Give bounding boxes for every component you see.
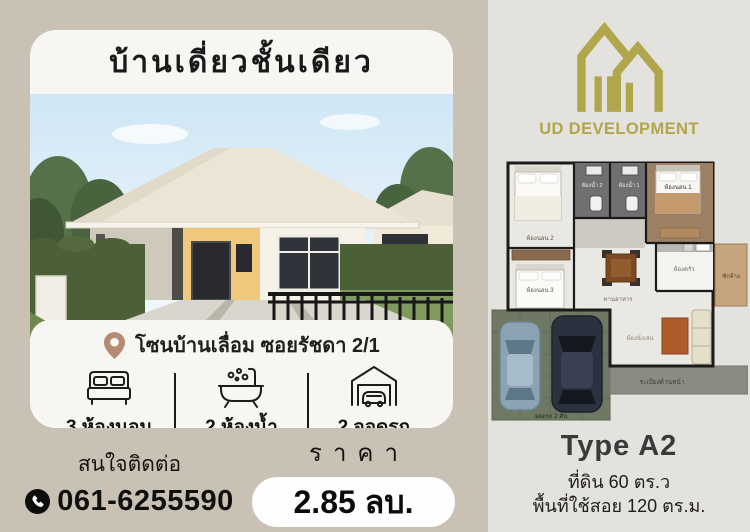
living-label: ห้องนั่งเล่น [626, 334, 653, 342]
location-text: โซนบ้านเลื่อม ซอยรัชดา 2/1 [135, 329, 380, 361]
floorplan: จอดรถ 2 คัน ระเบียงด้านหน้า ซักล้าง ห้อง… [490, 152, 748, 424]
sideboard [512, 250, 570, 260]
sofa [692, 310, 711, 364]
bed-icon [83, 367, 135, 409]
brand-name: UD DEVELOPMENT [488, 120, 750, 139]
feature-parking-label: 2 จอดรถ [338, 412, 410, 428]
phone-digits: 061-6255590 [57, 485, 233, 518]
porch-label: ระเบียงด้านหน้า [639, 378, 684, 386]
feature-bedrooms: 3 ห้องนอน [44, 363, 174, 428]
hall-area [575, 218, 645, 248]
bedroom3-area: ห้องนอน 3 [516, 264, 564, 308]
flyer: UD DEVELOPMENT จอดรถ 2 คัน [0, 0, 750, 532]
laundry-label: ซักล้าง [722, 273, 740, 280]
usable-area: พื้นที่ใช้สอย 120 ตร.ม. [488, 491, 750, 520]
contact-label: สนใจติดต่อ [22, 448, 237, 481]
price-label: ราคา [252, 433, 455, 472]
feature-bathrooms: 2 ห้องน้ำ [176, 363, 306, 428]
contact-block: สนใจติดต่อ 061-6255590 [22, 448, 237, 518]
bath1-label: ห้องน้ำ 1 [618, 181, 639, 189]
coffee-table [662, 318, 688, 354]
features-row: 3 ห้องนอน 2 ห้องน้ำ [30, 361, 453, 428]
price-block: ราคา 2.85 ลบ. [252, 433, 455, 527]
feature-bedrooms-label: 3 ห้องนอน [66, 412, 152, 428]
car-dark-icon [552, 316, 602, 412]
phone-icon [25, 489, 50, 514]
gate-pillar [36, 276, 66, 324]
listing-title: บ้านเดี่ยวชั้นเดียว [30, 30, 453, 94]
dining-label: ทานอาหาร [604, 296, 634, 303]
location-pin-icon [103, 331, 126, 360]
price-value: 2.85 ลบ. [252, 477, 455, 527]
houses-logo-icon [566, 18, 672, 114]
carport-label: จอดรถ 2 คัน [535, 413, 568, 420]
house-photo [30, 94, 453, 338]
feature-bathrooms-label: 2 ห้องน้ำ [205, 412, 278, 428]
bathtub-icon [215, 363, 267, 409]
listing-card: บ้านเดี่ยวชั้นเดียว [30, 30, 453, 428]
bath2-label: ห้องน้ำ 2 [581, 181, 602, 189]
bedroom1-label: ห้องนอน 1 [664, 184, 692, 191]
kitchen-label: ห้องครัว [673, 266, 694, 273]
dining-set [602, 250, 640, 286]
car-light-icon [500, 322, 540, 410]
features-panel: โซนบ้านเลื่อม ซอยรัชดา 2/1 3 ห้องนอน [30, 320, 453, 428]
phone-number[interactable]: 061-6255590 [22, 485, 237, 518]
garage-icon [348, 363, 400, 409]
feature-parking: 2 จอดรถ [309, 363, 439, 428]
bedroom2-label: ห้องนอน 2 [526, 235, 554, 242]
brand-logo [488, 18, 750, 114]
brand-panel: UD DEVELOPMENT จอดรถ 2 คัน [488, 0, 750, 532]
bedroom3-label: ห้องนอน 3 [526, 287, 554, 294]
location-row: โซนบ้านเลื่อม ซอยรัชดา 2/1 [30, 320, 453, 361]
plan-type: Type A2 [488, 430, 750, 463]
